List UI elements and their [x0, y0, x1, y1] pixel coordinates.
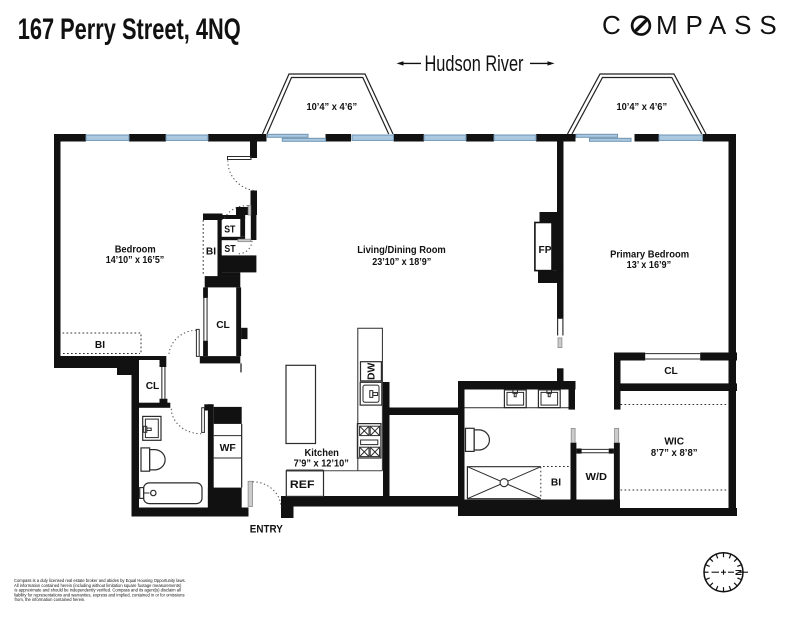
svg-text:13’ x 16’9”: 13’ x 16’9”: [627, 259, 672, 271]
svg-text:ST: ST: [224, 244, 236, 255]
svg-text:23’10” x 18’9”: 23’10” x 18’9”: [372, 256, 431, 268]
svg-text:ST: ST: [224, 224, 236, 235]
svg-text:10’4” x 4’6”: 10’4” x 4’6”: [306, 101, 357, 113]
svg-text:BI: BI: [206, 247, 216, 258]
svg-text:W/D: W/D: [586, 472, 608, 483]
svg-text:8’7” x 8’8”: 8’7” x 8’8”: [651, 447, 698, 459]
svg-text:REF: REF: [290, 479, 315, 491]
svg-text:C: C: [602, 10, 627, 40]
svg-text:14’10” x 16’5”: 14’10” x 16’5”: [106, 254, 165, 266]
svg-text:10’4” x 4’6”: 10’4” x 4’6”: [616, 101, 667, 113]
svg-text:7’9” x 12’10”: 7’9” x 12’10”: [294, 458, 349, 470]
svg-text:167 Perry Street, 4NQ: 167 Perry Street, 4NQ: [18, 13, 241, 46]
svg-text:CL: CL: [664, 366, 678, 377]
svg-text:Living/Dining Room: Living/Dining Room: [357, 244, 446, 256]
svg-text:ENTRY: ENTRY: [250, 523, 284, 535]
svg-text:MPASS: MPASS: [656, 10, 785, 40]
svg-text:N: N: [734, 569, 744, 575]
svg-text:from, the information containe: from, the information contained herein.: [15, 597, 86, 602]
svg-text:WF: WF: [220, 443, 236, 454]
svg-text:WIC: WIC: [664, 436, 684, 448]
svg-text:Hudson River: Hudson River: [425, 51, 524, 76]
svg-text:FP: FP: [538, 245, 551, 256]
svg-text:BI: BI: [95, 340, 105, 351]
svg-text:BI: BI: [551, 477, 561, 488]
svg-text:DW: DW: [367, 362, 378, 380]
svg-text:CL: CL: [216, 320, 230, 331]
svg-text:CL: CL: [146, 381, 160, 392]
